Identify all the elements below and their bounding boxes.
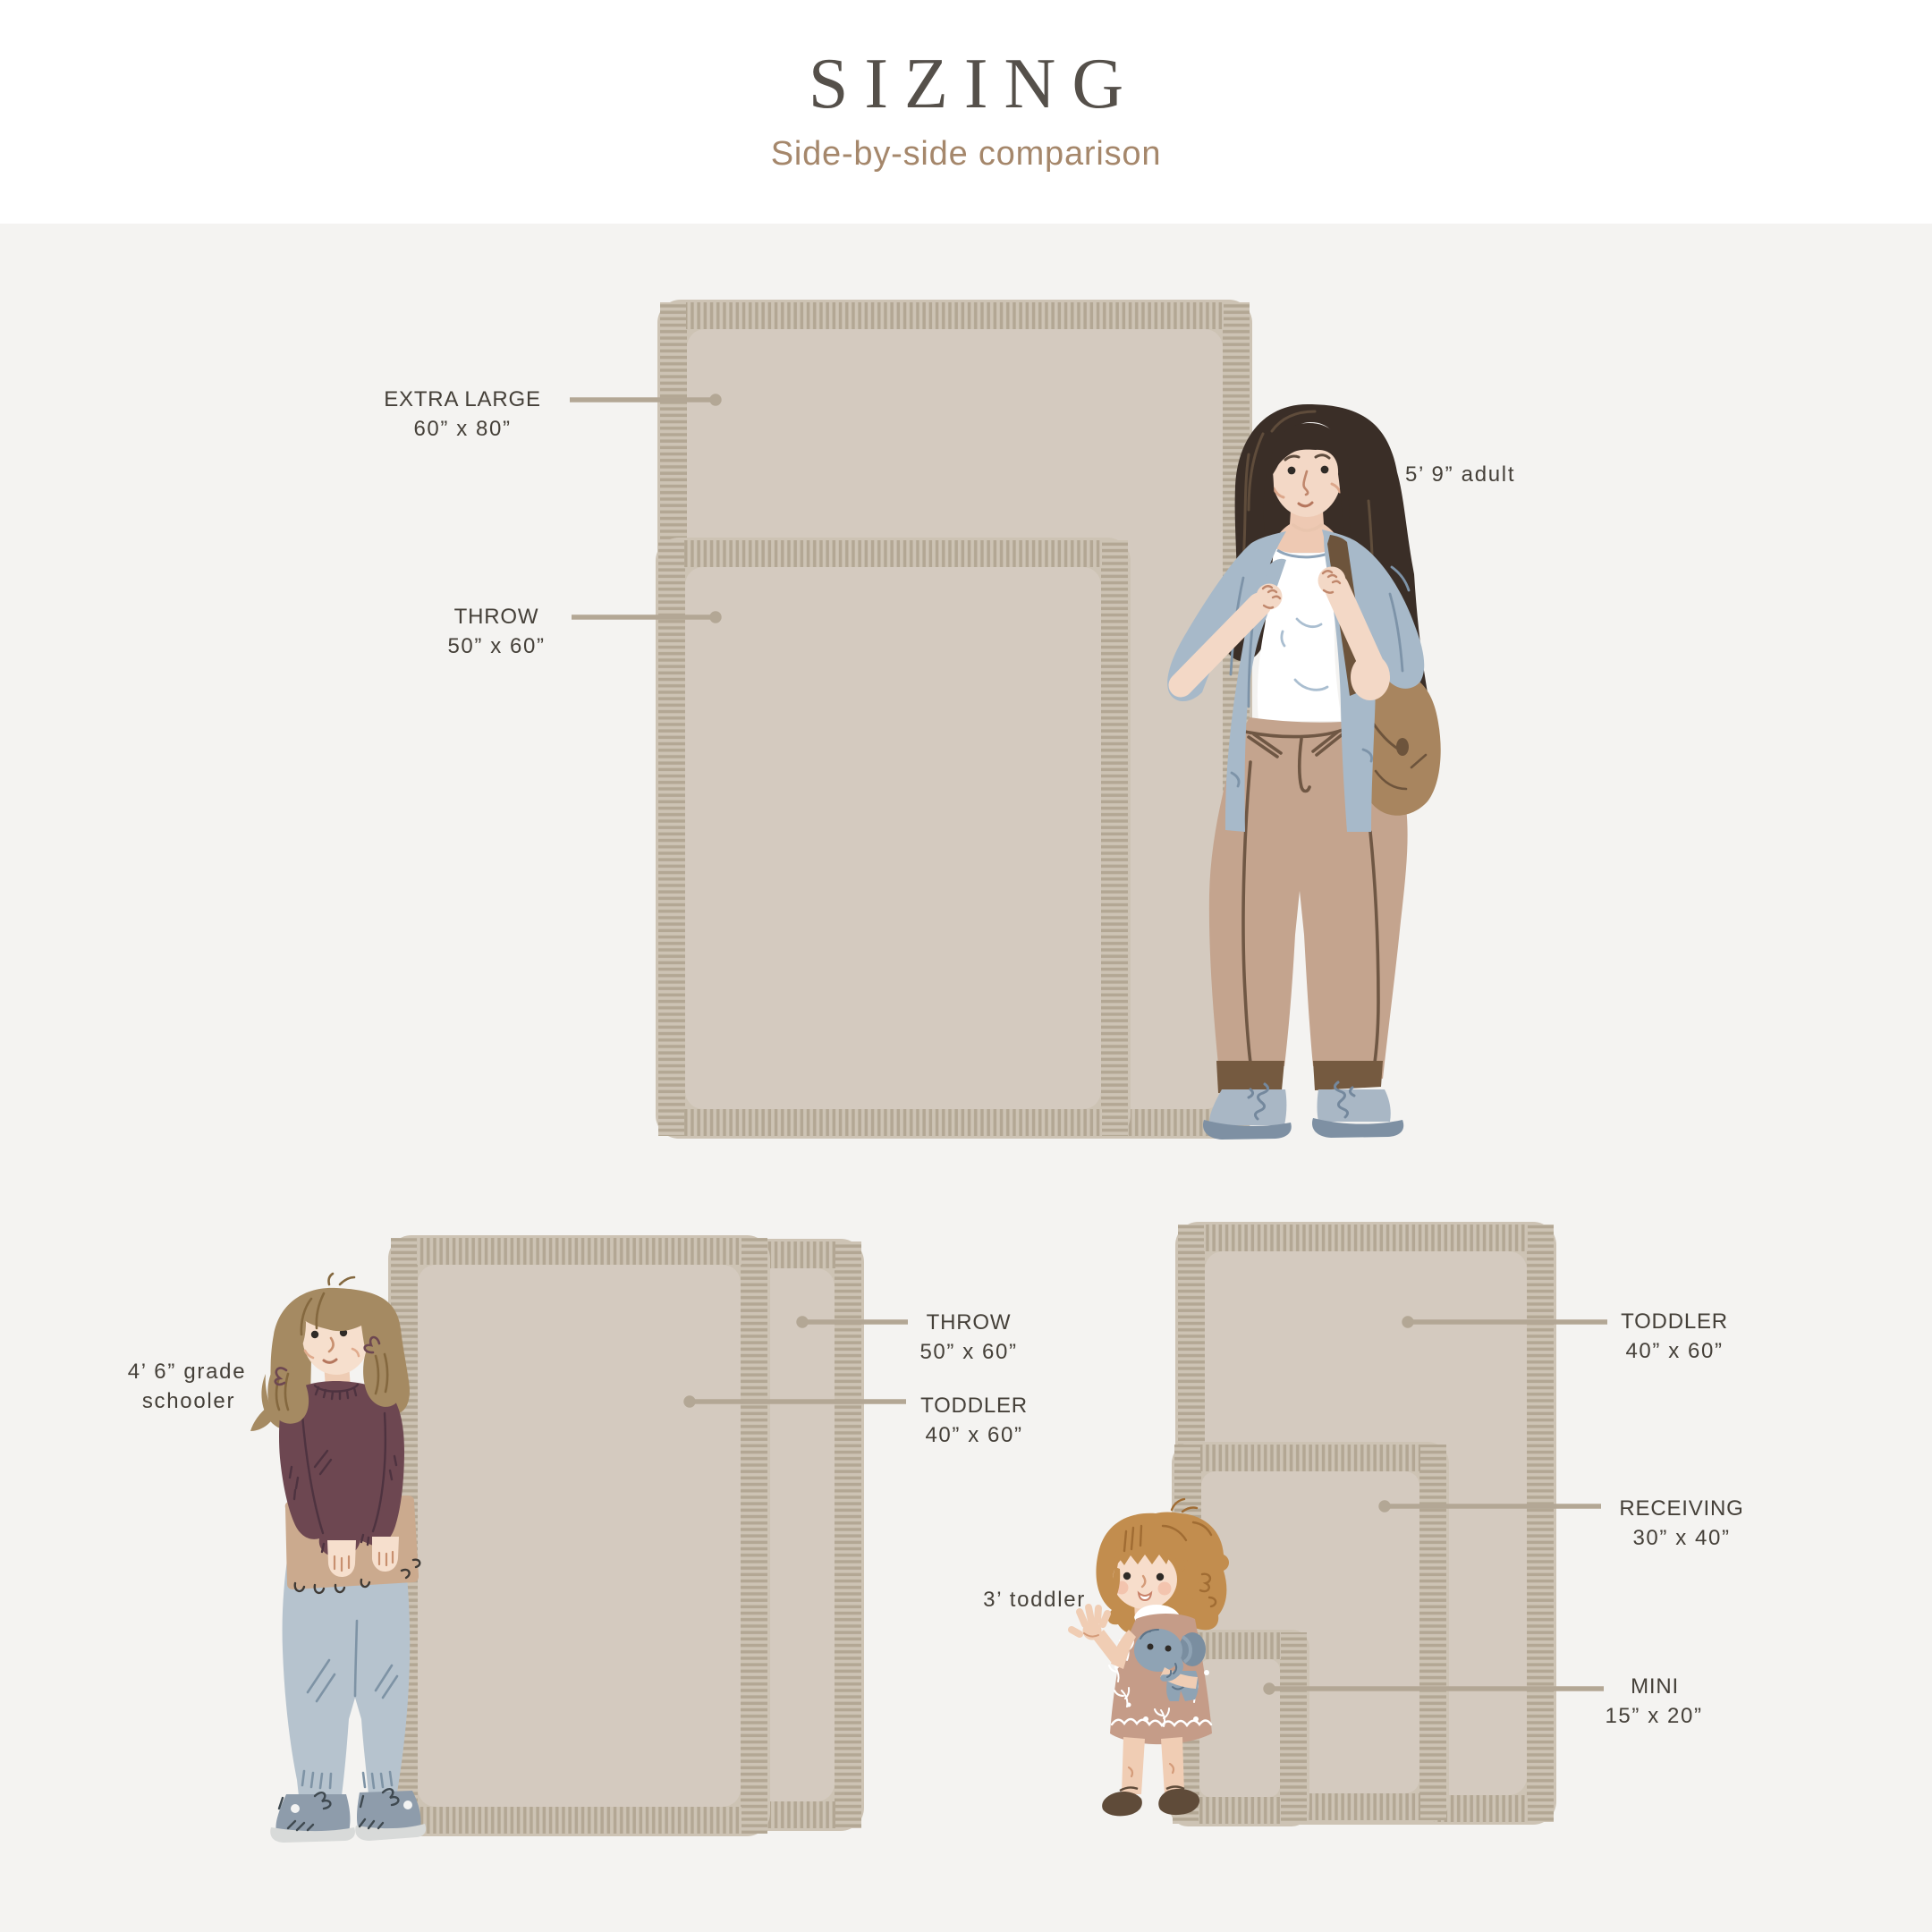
svg-text:TODDLER: TODDLER: [920, 1394, 1028, 1418]
svg-text:SIZING: SIZING: [809, 45, 1140, 123]
svg-text:30” x 40”: 30” x 40”: [1632, 1526, 1730, 1550]
svg-text:MINI: MINI: [1631, 1674, 1679, 1699]
svg-text:3’ toddler: 3’ toddler: [983, 1588, 1086, 1612]
svg-text:50” x 60”: 50” x 60”: [919, 1340, 1017, 1364]
svg-text:40” x 60”: 40” x 60”: [925, 1423, 1022, 1447]
svg-text:EXTRA LARGE: EXTRA LARGE: [384, 387, 541, 411]
svg-text:15” x 20”: 15” x 20”: [1605, 1704, 1702, 1728]
svg-text:THROW: THROW: [927, 1310, 1012, 1335]
svg-text:4’ 6” grade: 4’ 6” grade: [128, 1360, 247, 1384]
svg-text:THROW: THROW: [454, 605, 539, 629]
svg-text:60” x 80”: 60” x 80”: [413, 417, 511, 441]
svg-text:50” x 60”: 50” x 60”: [447, 634, 545, 658]
svg-text:TODDLER: TODDLER: [1621, 1309, 1728, 1334]
svg-text:RECEIVING: RECEIVING: [1619, 1496, 1743, 1521]
svg-text:Side-by-side comparison: Side-by-side comparison: [771, 135, 1162, 173]
svg-text:40” x 60”: 40” x 60”: [1625, 1339, 1723, 1363]
svg-text:schooler: schooler: [142, 1389, 235, 1413]
svg-text:5’ 9” adult: 5’ 9” adult: [1405, 462, 1515, 487]
